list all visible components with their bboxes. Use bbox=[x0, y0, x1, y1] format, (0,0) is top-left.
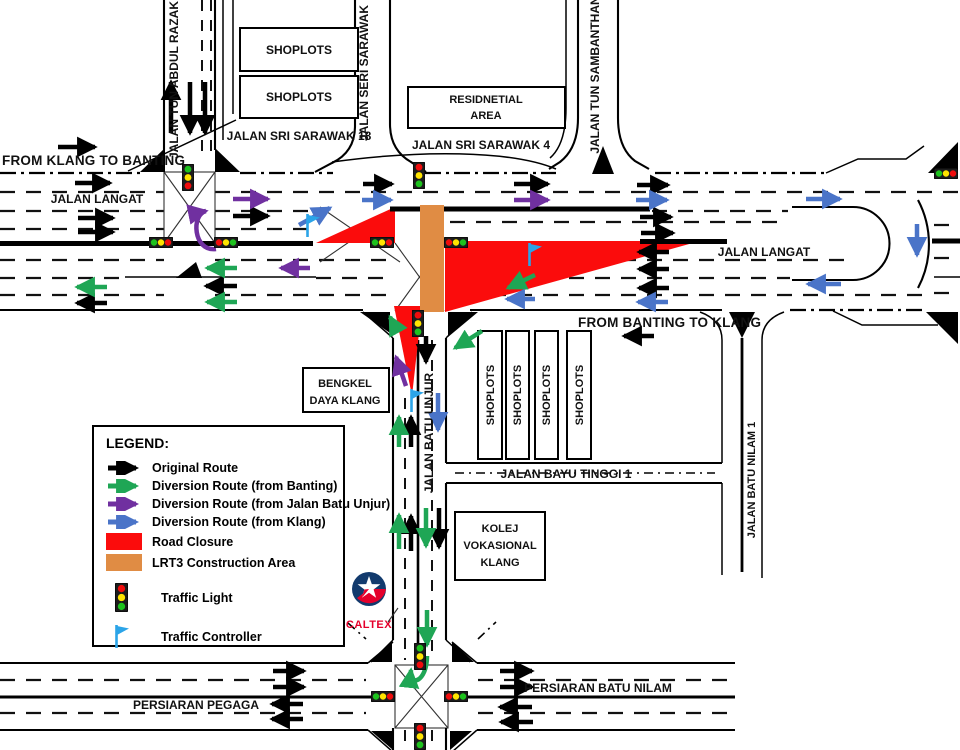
shoplots-1-label: SHOPLOTS bbox=[266, 43, 332, 57]
traffic-light-icon bbox=[214, 237, 238, 248]
jalan-tun-sambanthan-label: JALAN TUN SAMBANTHAN bbox=[588, 0, 602, 154]
median-lines bbox=[0, 209, 960, 244]
persiaran-pegaga-label: PERSIARAN PEGAGA bbox=[133, 698, 259, 712]
blue-arrow-icon bbox=[106, 515, 152, 529]
legend-item-diversion-klang: Diversion Route (from Klang) bbox=[106, 515, 343, 529]
traffic-diversion-map: CALTEX FROM KLANG TO BANTING FROM BANTIN… bbox=[0, 0, 960, 750]
jalan-batu-nilam-1-label: JALAN BATU NILAM 1 bbox=[746, 422, 758, 539]
jalan-tun-abdul-razak-label: JALAN TUN ABDUL RAZAK bbox=[167, 1, 181, 159]
traffic-light-icon bbox=[371, 691, 395, 702]
legend-title: LEGEND: bbox=[106, 435, 343, 451]
green-arrow-icon bbox=[106, 479, 152, 493]
legend-item-traffic-light: Traffic Light bbox=[106, 583, 343, 613]
legend-item-lrt3-area: LRT3 Construction Area bbox=[106, 554, 343, 571]
bengkel-label-2: DAYA KLANG bbox=[310, 395, 381, 407]
legend-item-traffic-controller: Traffic Controller bbox=[106, 625, 343, 649]
shoplot-v4-label: SHOPLOTS bbox=[574, 365, 586, 426]
legend-item-diversion-batu-unjur: Diversion Route (from Jalan Batu Unjur) bbox=[106, 497, 343, 511]
shoplots-2-label: SHOPLOTS bbox=[266, 90, 332, 104]
kolej-label-3: KLANG bbox=[480, 557, 519, 569]
persiaran-batu-nilam-label: PERSIARAN BATU NILAM bbox=[524, 681, 672, 695]
jalan-sri-sarawak-18-label: JALAN SRI SARAWAK 18 bbox=[227, 129, 372, 143]
from-banting-to-klang-label: FROM BANTING TO KLANG bbox=[578, 315, 761, 330]
traffic-light-icon bbox=[414, 643, 426, 670]
shoplot-v1-label: SHOPLOTS bbox=[485, 365, 497, 426]
legend-item-diversion-banting: Diversion Route (from Banting) bbox=[106, 479, 343, 493]
residential-label-2: AREA bbox=[470, 110, 501, 122]
traffic-light-icon bbox=[106, 583, 161, 613]
traffic-light-icon bbox=[149, 237, 173, 248]
residential-label-1: RESIDNETIAL bbox=[449, 94, 523, 106]
jalan-langat-right-label: JALAN LANGAT bbox=[718, 245, 811, 259]
lrt3-area-swatch bbox=[106, 554, 152, 571]
traffic-light-icon bbox=[934, 168, 958, 179]
black-arrow-icon bbox=[106, 461, 152, 475]
legend-item-original-route: Original Route bbox=[106, 461, 343, 475]
road-closure-swatch bbox=[106, 533, 152, 550]
jalan-bayu-tinggi-1-label: JALAN BAYU TINGGI 1 bbox=[501, 467, 632, 481]
from-klang-to-banting-label: FROM KLANG TO BANTING bbox=[2, 153, 185, 168]
jalan-sri-sarawak-4-label: JALAN SRI SARAWAK 4 bbox=[412, 138, 550, 152]
bengkel-label-1: BENGKEL bbox=[318, 378, 372, 390]
traffic-light-icon bbox=[412, 310, 424, 337]
lrt3-construction-area bbox=[420, 205, 444, 312]
caltex-label: CALTEX bbox=[346, 619, 392, 631]
traffic-light-icon bbox=[414, 723, 426, 750]
traffic-controller-flag-icon bbox=[106, 625, 161, 649]
traffic-light-icon bbox=[444, 691, 468, 702]
legend-item-road-closure: Road Closure bbox=[106, 533, 343, 550]
traffic-controller-flag-icon bbox=[308, 214, 321, 237]
legend-box: LEGEND: Original Route Diversion Route (… bbox=[92, 425, 345, 647]
traffic-light-icon bbox=[182, 164, 194, 191]
traffic-light-icon bbox=[370, 237, 394, 248]
traffic-light-icon bbox=[413, 162, 425, 189]
kolej-label-1: KOLEJ bbox=[482, 523, 519, 535]
shoplot-v3-label: SHOPLOTS bbox=[541, 365, 553, 426]
jalan-batu-unjur-label: JALAN BATU UNJUR bbox=[422, 372, 436, 493]
kolej-label-2: VOKASIONAL bbox=[463, 540, 537, 552]
purple-arrow-icon bbox=[106, 497, 152, 511]
shoplot-v2-label: SHOPLOTS bbox=[512, 365, 524, 426]
jalan-langat-left-label: JALAN LANGAT bbox=[51, 192, 144, 206]
caltex-logo: CALTEX bbox=[346, 572, 398, 631]
jalan-seri-sarawak-label: JALAN SERI SARAWAK bbox=[357, 5, 371, 141]
traffic-light-icon bbox=[444, 237, 468, 248]
